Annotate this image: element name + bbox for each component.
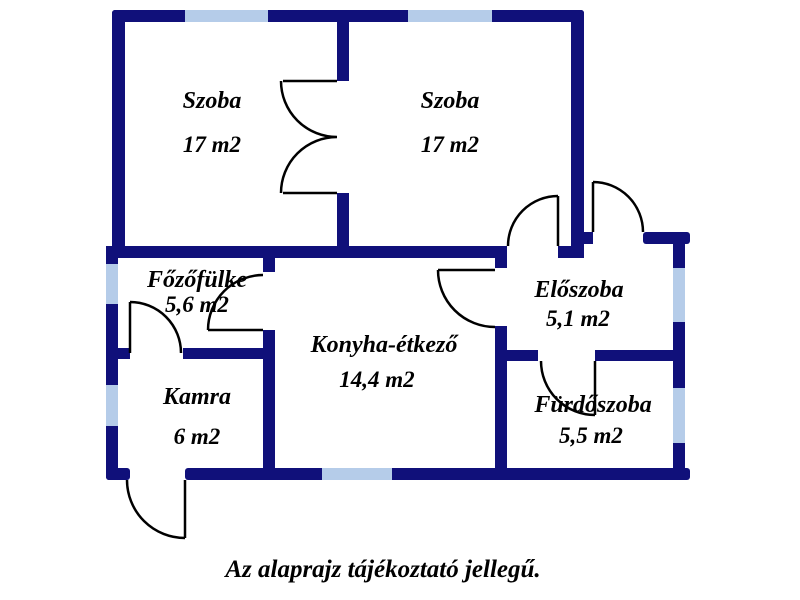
room-area-konyha: 14,4 m2 bbox=[339, 367, 414, 392]
room-area-szoba-left: 17 m2 bbox=[183, 132, 241, 157]
room-area-furdoszoba: 5,5 m2 bbox=[559, 423, 623, 448]
window-kamra bbox=[106, 385, 118, 426]
wall-szoba-divider-top bbox=[337, 10, 349, 81]
wall-kamra-top-right bbox=[183, 348, 275, 359]
room-name-furdoszoba: Fürdőszoba bbox=[533, 392, 651, 418]
room-name-kamra: Kamra bbox=[162, 384, 231, 410]
room-name-konyha: Konyha-étkező bbox=[310, 332, 460, 358]
wall-bottom-main bbox=[185, 468, 690, 480]
window-szoba-right bbox=[408, 10, 492, 22]
room-area-szoba-right: 17 m2 bbox=[421, 132, 479, 157]
double-door-szoba-szoba bbox=[281, 81, 337, 193]
wall-eloszoba-furdoszoba-right bbox=[595, 350, 685, 361]
window-szoba-left bbox=[185, 10, 268, 22]
room-name-eloszoba: Előszoba bbox=[533, 277, 623, 303]
plan-caption: Az alaprajz tájékoztató jellegű. bbox=[223, 556, 540, 583]
room-area-fozofulke: 5,6 m2 bbox=[165, 292, 229, 317]
wall-kamra-top-left bbox=[106, 348, 130, 359]
window-furdoszoba bbox=[673, 388, 685, 443]
window-eloszoba bbox=[673, 268, 685, 322]
wall-szoba-right-east bbox=[571, 10, 584, 258]
door-szoba-eloszoba bbox=[508, 196, 558, 246]
wall-fozofulke-konyha-stub bbox=[263, 258, 275, 272]
room-area-kamra: 6 m2 bbox=[174, 424, 221, 449]
door-entrance bbox=[593, 182, 643, 232]
wall-left-upper bbox=[112, 10, 125, 258]
room-name-fozofulke: Főzőfülke bbox=[146, 267, 247, 293]
door-konyha-eloszoba bbox=[438, 270, 495, 327]
window-konyha bbox=[322, 468, 392, 480]
floor-plan-drawing: Szoba 17 m2 Szoba 17 m2 Főzőfülke 5,6 m2… bbox=[0, 0, 800, 600]
floor-plan: Szoba 17 m2 Szoba 17 m2 Főzőfülke 5,6 m2… bbox=[0, 0, 800, 600]
window-fozofulke bbox=[106, 264, 118, 304]
wall-konyha-eloszoba-lower bbox=[495, 326, 507, 480]
wall-eloszoba-furdoszoba-left bbox=[495, 350, 538, 361]
wall-konyha-eloszoba-stub bbox=[495, 258, 507, 268]
room-name-szoba-left: Szoba bbox=[183, 88, 242, 114]
wall-szoba-divider-bottom bbox=[337, 193, 349, 258]
room-area-eloszoba: 5,1 m2 bbox=[546, 306, 610, 331]
wall-mid-horizontal-left bbox=[106, 246, 507, 258]
wall-bottom-left-bit bbox=[106, 468, 130, 480]
room-name-szoba-right: Szoba bbox=[421, 88, 480, 114]
door-kamra-exterior bbox=[127, 480, 185, 538]
